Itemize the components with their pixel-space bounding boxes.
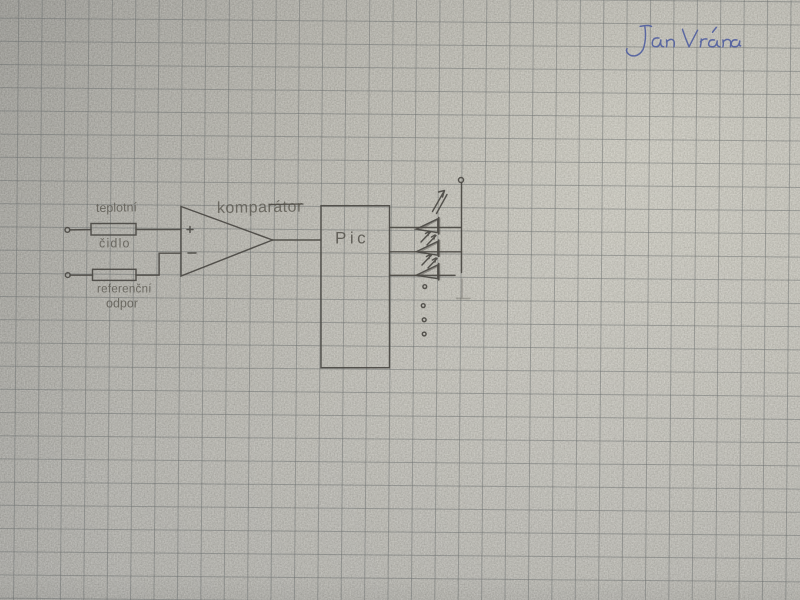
svg-text:odpor: odpor: [106, 297, 138, 311]
svg-text:čidlo: čidlo: [99, 237, 131, 251]
svg-text:komparátor: komparátor: [217, 198, 303, 216]
svg-text:teplotní: teplotní: [96, 200, 138, 215]
svg-text:referenční: referenční: [97, 284, 152, 296]
svg-text:Pic: Pic: [335, 229, 369, 248]
